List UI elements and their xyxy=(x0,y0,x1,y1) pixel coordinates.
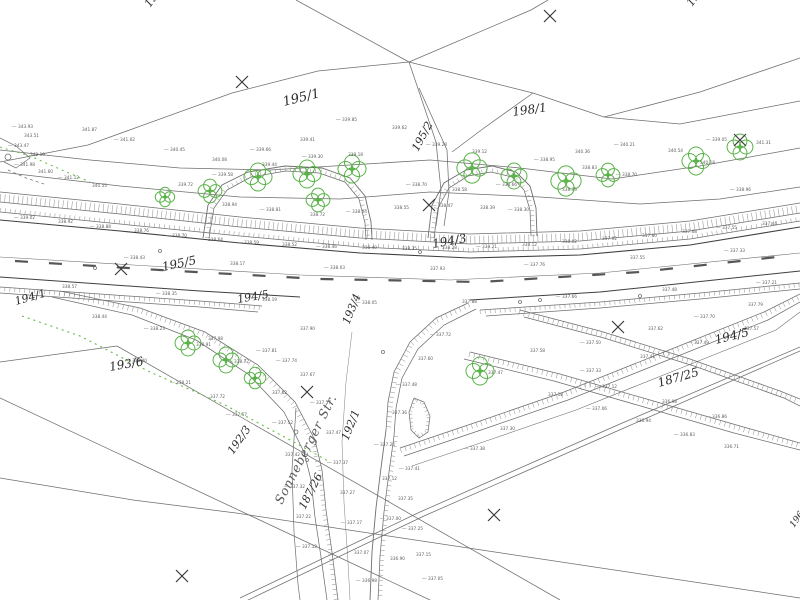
elevation-label: 337.38 xyxy=(470,446,485,452)
elevation-label: 338.30 xyxy=(514,207,529,213)
elevation-label: 337.93 xyxy=(430,266,445,272)
elevation-label: 339.58 xyxy=(218,172,233,178)
elevation-label: 338.43 xyxy=(130,255,145,261)
hatch-ticks xyxy=(469,352,798,447)
elevation-label: 339.12 xyxy=(472,149,487,155)
elevation-label: 338.88 xyxy=(96,224,111,230)
elevation-label: 338.35 xyxy=(162,291,177,297)
elevation-label: 337.62 xyxy=(272,390,287,396)
elevation-label: 338.76 xyxy=(134,228,149,234)
parcel-label: 194/3 xyxy=(431,231,468,251)
elevation-label: 338.75 xyxy=(562,187,577,193)
elevation-label: 337.60 xyxy=(418,356,433,362)
elevation-label: 338.70 xyxy=(172,233,187,239)
elevation-label: 337.12 xyxy=(602,384,617,390)
point-symbol xyxy=(382,351,385,354)
elevation-label: 341.02 xyxy=(120,137,135,143)
tree-center-mark xyxy=(738,145,743,150)
elevation-label: 337.79 xyxy=(748,302,763,308)
elevation-label: 337.47 xyxy=(488,370,503,376)
elevation-label: 337.90 xyxy=(300,326,315,332)
elevation-label: 339.62 xyxy=(392,125,407,131)
elevation-label: 337.48 xyxy=(662,287,677,293)
plan-line xyxy=(0,398,430,600)
tree-center-mark xyxy=(208,189,213,194)
point-symbol xyxy=(419,251,422,254)
elevation-label: 337.70 xyxy=(700,314,715,320)
elevation-label: 338.17 xyxy=(230,261,245,267)
plan-line xyxy=(404,302,800,456)
elevation-label: 340.54 xyxy=(668,148,683,154)
survey-cross-icon xyxy=(612,321,624,333)
elevation-label: 337.22 xyxy=(296,514,311,520)
elevation-label: 343.93 xyxy=(18,124,33,130)
plan-line xyxy=(244,351,800,600)
elevation-label: 337.80 xyxy=(642,233,657,239)
plan-line xyxy=(409,0,548,62)
elevation-label: 338.95 xyxy=(540,157,555,163)
parcel-label: 194/1 xyxy=(13,287,47,308)
elevation-label: 337.50 xyxy=(586,340,601,346)
plan-line xyxy=(604,58,800,117)
elevation-label: 338.52 xyxy=(282,242,297,248)
elevation-label: 338.46 xyxy=(322,244,337,250)
parcel-label: 195/ xyxy=(142,0,168,10)
elevation-label: 337.55 xyxy=(630,255,645,261)
elevation-label: 339.44 xyxy=(262,162,277,168)
elevation-label: 337.52 xyxy=(278,420,293,426)
vegetation-line xyxy=(22,316,330,462)
elevation-label: 337.66 xyxy=(562,294,577,300)
survey-cross-icon xyxy=(236,76,248,88)
elevation-label: 337.35 xyxy=(398,496,413,502)
elevation-label: 336.98 xyxy=(362,578,377,584)
elevation-label: 341.98 xyxy=(20,162,35,168)
elevation-label: 336.90 xyxy=(390,556,405,562)
tree-center-mark xyxy=(478,369,483,374)
elevation-label: 338.02 xyxy=(562,239,577,245)
point-symbol xyxy=(539,299,542,302)
tree-center-mark xyxy=(564,179,569,184)
survey-cross-icon xyxy=(423,199,435,211)
elevation-label: 336.86 xyxy=(712,414,727,420)
elevation-label: 337.44 xyxy=(762,221,777,227)
survey-cross-icon xyxy=(544,10,556,22)
point-symbol xyxy=(639,295,642,298)
elevation-label: 337.41 xyxy=(640,354,655,360)
parcel-label: 187/25 xyxy=(656,365,700,390)
parcel-label: 192/3 xyxy=(225,423,254,456)
plan-line xyxy=(604,101,800,124)
plan-line xyxy=(342,332,352,600)
elevation-label: 340.21 xyxy=(620,142,635,148)
elevation-label: 338.40 xyxy=(362,245,377,251)
elevation-label: 338.83 xyxy=(582,165,597,171)
elevation-label: 340.55 xyxy=(92,183,107,189)
plan-line xyxy=(394,309,476,436)
elevation-label: 337.17 xyxy=(347,520,362,526)
elevation-label: 337.68 xyxy=(682,229,697,235)
elevation-label: 340.18 xyxy=(700,160,715,166)
elevation-label: 339.85 xyxy=(342,117,357,123)
point-symbol xyxy=(5,154,11,160)
plan-line xyxy=(428,166,537,238)
elevation-label: 338.64 xyxy=(208,237,223,243)
elevation-label: 338.72 xyxy=(310,212,325,218)
elevation-label: 338.59 xyxy=(244,240,259,246)
elevation-label: 338.72 xyxy=(234,359,249,365)
plan-line xyxy=(409,62,604,117)
elevation-label: 337.55 xyxy=(722,225,737,231)
hatch-ticks xyxy=(519,310,797,402)
elevation-label: 337.74 xyxy=(282,358,297,364)
elevation-label: 339.02 xyxy=(20,215,35,221)
plan-line xyxy=(240,347,800,598)
elevation-label: 338.81 xyxy=(266,207,281,213)
elevation-label: 337.37 xyxy=(333,460,348,466)
plan-line xyxy=(470,271,800,300)
elevation-label: 337.41 xyxy=(405,466,420,472)
point-symbol xyxy=(159,250,162,253)
survey-cross-icon xyxy=(301,386,313,398)
hatch-ticks xyxy=(318,470,338,600)
tree-center-mark xyxy=(350,167,355,172)
hatch-ticks xyxy=(386,303,470,427)
elevation-label: 337.06 xyxy=(592,406,607,412)
parcel-label: 192/1 xyxy=(339,408,363,442)
parcel-label: 196 xyxy=(788,510,800,530)
elevation-label: 338.70 xyxy=(622,172,637,178)
parcel-label: 187/26 xyxy=(296,471,325,511)
elevation-label: 337.12 xyxy=(302,544,317,550)
plan-line xyxy=(0,478,236,513)
elevation-label: 341.12 xyxy=(64,175,79,181)
elevation-label: 338.92 xyxy=(58,219,73,225)
plan-line xyxy=(452,93,533,152)
elevation-label: 337.48 xyxy=(402,382,417,388)
elevation-label: 337.72 xyxy=(436,332,451,338)
elevation-label: 338.70 xyxy=(412,182,427,188)
elevation-label: 338.21 xyxy=(482,244,497,250)
elevation-label: 340.45 xyxy=(170,147,185,153)
elevation-label: 337.18 xyxy=(548,392,563,398)
elevation-label: 337.57 xyxy=(232,412,247,418)
elevation-label: 338.55 xyxy=(394,205,409,211)
elevation-label: 338.91 xyxy=(196,342,211,348)
elevation-label: 338.94 xyxy=(222,202,237,208)
tree-center-mark xyxy=(186,341,191,346)
elevation-label: 337.98 xyxy=(208,336,223,342)
elevation-label: 338.03 xyxy=(330,265,345,271)
elevation-label: 338.23 xyxy=(150,326,165,332)
plan-line xyxy=(0,62,409,162)
elevation-label: 339.28 xyxy=(432,142,447,148)
elevation-label: 339.66 xyxy=(256,147,271,153)
tree-center-mark xyxy=(606,173,611,178)
plan-line xyxy=(0,192,800,234)
parcel-label: 193/6 xyxy=(108,354,145,374)
plan-line xyxy=(52,297,311,480)
elevation-label: 337.05 xyxy=(428,576,443,582)
elevation-label: 339.05 xyxy=(712,137,727,143)
cadastral-plan-page: 343.93343.51343.47342.19341.98341.60341.… xyxy=(0,0,800,600)
survey-cross-icon xyxy=(488,509,500,521)
elevation-label: 341.60 xyxy=(38,169,53,175)
elevation-label: 338.64 xyxy=(352,209,367,215)
elevation-label: 340.08 xyxy=(212,157,227,163)
elevation-label: 337.33 xyxy=(730,248,745,254)
parcel-label: 195/2 xyxy=(409,119,435,153)
elevation-label: 341.87 xyxy=(82,127,97,133)
elevation-label: 338.12 xyxy=(522,242,537,248)
elevation-label: 337.30 xyxy=(500,426,515,432)
parcel-label: 194/5 xyxy=(713,325,750,347)
elevation-label: 338.44 xyxy=(92,314,107,320)
parcel-label: 195/1 xyxy=(281,86,321,110)
elevation-label: 337.81 xyxy=(262,348,277,354)
elevation-label: 337.92 xyxy=(602,236,617,242)
parcel-label: 194/5 xyxy=(236,288,269,306)
elevation-label: 338.47 xyxy=(438,203,453,209)
elevation-label: 337.88 xyxy=(462,299,477,305)
plan-line xyxy=(0,172,800,204)
elevation-label: 338.57 xyxy=(62,284,77,290)
elevation-label: 338.96 xyxy=(736,187,751,193)
cadastral-plan-canvas: 343.93343.51343.47342.19341.98341.60341.… xyxy=(0,0,800,600)
elevation-label: 336.83 xyxy=(680,432,695,438)
elevation-label: 339.41 xyxy=(300,137,315,143)
elevation-label: 337.67 xyxy=(300,372,315,378)
elevation-label: 336.94 xyxy=(636,418,651,424)
elevation-label: 337.62 xyxy=(648,326,663,332)
point-symbol xyxy=(519,301,522,304)
elevation-label: 340.36 xyxy=(575,149,590,155)
parcel-label: 198/1 xyxy=(511,100,547,119)
elevation-label: 337.15 xyxy=(416,552,431,558)
elevation-label: 337.49 xyxy=(694,340,709,346)
elevation-label: 339.72 xyxy=(178,182,193,188)
hatch-ticks xyxy=(378,436,398,595)
elevation-label: 338.35 xyxy=(402,246,417,252)
elevation-label: 336.71 xyxy=(724,444,739,450)
survey-cross-icon xyxy=(115,263,127,275)
parcel-label: 193/4 xyxy=(340,292,364,326)
elevation-label: 337.33 xyxy=(586,368,601,374)
elevation-label: 338.66 xyxy=(502,182,517,188)
parcel-label: 19 xyxy=(684,0,703,9)
elevation-label: 336.98 xyxy=(662,399,677,405)
elevation-label: 337.24 xyxy=(380,442,395,448)
elevation-label: 343.51 xyxy=(24,133,39,139)
plan-line xyxy=(0,220,800,258)
elevation-label: 343.47 xyxy=(14,143,29,149)
elevation-label: 337.00 xyxy=(386,516,401,522)
plan-line xyxy=(0,346,117,362)
survey-cross-icon xyxy=(176,570,188,582)
tree-center-mark xyxy=(163,195,168,200)
elevation-label: 337.27 xyxy=(340,490,355,496)
plan-line xyxy=(296,0,409,62)
elevation-label: 337.25 xyxy=(408,526,423,532)
elevation-label: 338.05 xyxy=(362,300,377,306)
elevation-label: 337.58 xyxy=(530,348,545,354)
elevation-label: 339.30 xyxy=(308,154,323,160)
elevation-label: 337.76 xyxy=(530,262,545,268)
elevation-label: 337.72 xyxy=(210,394,225,400)
elevation-label: 337.12 xyxy=(382,476,397,482)
elevation-label: 337.07 xyxy=(354,550,369,556)
elevation-label: 341.31 xyxy=(756,140,771,146)
elevation-label: 339.18 xyxy=(348,152,363,158)
elevation-label: 338.21 xyxy=(176,380,191,386)
elevation-label: 337.21 xyxy=(762,280,777,286)
elevation-label: 338.58 xyxy=(452,187,467,193)
elevation-label: 337.36 xyxy=(392,410,407,416)
elevation-label: 342.19 xyxy=(30,152,45,158)
elevation-label: 338.39 xyxy=(480,205,495,211)
